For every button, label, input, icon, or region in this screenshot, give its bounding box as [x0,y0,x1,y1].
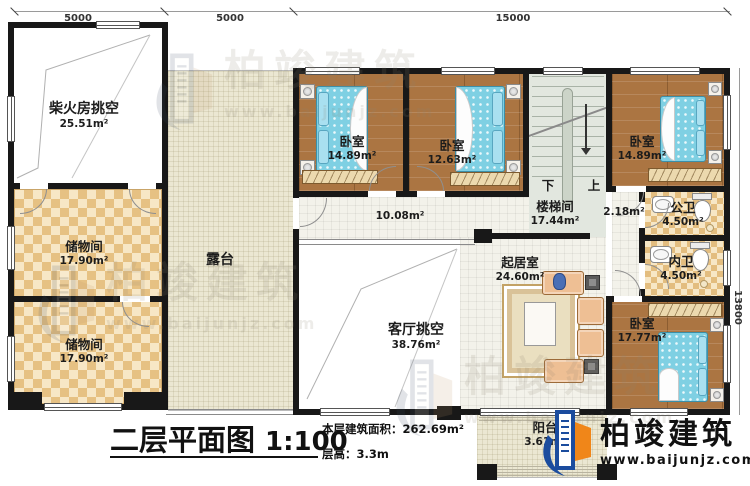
room-label-bedroom-4: 卧室 17.77m² [602,312,682,350]
brand-block: 柏竣建筑 www.baijunjz.com [536,406,750,480]
nightstand [710,388,724,402]
pillow [698,368,707,396]
window [7,226,15,270]
coffee-table [524,302,556,346]
wall [162,22,168,410]
pillow [492,92,503,126]
stair-down-label: 下 [538,175,558,194]
room-area: 4.50m² [660,270,701,284]
wall [645,235,730,241]
drawing-title: 二层平面图 1:100 [110,419,318,458]
door-gap [368,191,396,197]
room-label-bedroom-1: 卧室 14.89m² [312,130,392,168]
wall [523,68,529,197]
room-area: 24.60m² [496,271,545,285]
dimension-line-top [14,11,730,12]
window [723,325,731,383]
wall-post [474,229,492,243]
nightstand [708,150,722,164]
nightstand [710,318,724,332]
room-name: 起居室 [501,255,539,271]
brand-url: www.baijunjz.com [600,453,750,468]
room-name: 卧室 [339,134,364,150]
window [723,95,731,150]
nightstand [708,82,722,96]
wall [293,68,299,415]
room-area: 17.90m² [60,255,109,269]
wardrobe [302,170,378,184]
door-gap [293,198,299,229]
wall-pillar [124,392,168,410]
window [320,408,390,416]
dimension-label: 5000 [200,13,260,24]
balcony-post [477,464,497,480]
room-area: 17.44m² [531,215,580,229]
room-name: 柴火房挑空 [49,100,119,118]
pillow [696,130,705,156]
room-area: 14.89m² [618,150,667,164]
hallway-railing [299,239,475,245]
room-area: 17.77m² [618,332,667,346]
room-label-firewood-void: 柴火房挑空 25.51m² [28,97,140,135]
window [44,403,122,411]
nightstand [506,84,521,99]
stair-up-label: 上 [584,175,604,194]
room-name: 内卫 [668,254,693,270]
stair-rail [562,88,573,206]
room-label-bedroom-2: 卧室 12.63m² [412,134,492,172]
room-area: 17.90m² [60,353,109,367]
wardrobe [450,172,520,186]
pillow [492,130,503,164]
blanket [659,368,679,401]
dimension-label: 15000 [478,13,548,24]
door-gap [614,296,642,302]
window [441,67,495,75]
window [305,67,360,75]
window [7,96,15,142]
wall [492,233,590,239]
terrace-edge-railing [166,409,294,415]
room-name: 卧室 [629,316,654,332]
room-area: 14.89m² [328,150,377,164]
wall [299,191,529,197]
window [7,336,15,382]
room-name: 露台 [206,251,234,269]
wardrobe [648,168,722,182]
window [630,67,700,75]
room-name: 储物间 [65,337,103,353]
brand-text: 柏竣建筑 www.baijunjz.com [600,418,750,468]
brand-logo-icon [536,406,596,480]
terrace-floor [168,70,293,411]
room-area: 12.63m² [428,154,477,168]
floor-area-note: 本层建筑面积：262.69m² [322,421,492,437]
room-label-public-bath: 公卫 4.50m² [650,198,716,232]
window [723,250,731,286]
door-gap [417,191,445,197]
room-name: 储物间 [65,239,103,255]
room-label-storage-2: 储物间 17.90m² [50,334,118,370]
dimension-line-right [739,68,740,415]
dimension-label: 13800 [732,272,743,342]
toilet-tank [690,242,710,249]
corridor-area-label: 2.18m² [600,206,648,218]
armchair [577,297,604,325]
sofa [544,359,584,383]
room-label-family-room: 起居室 24.60m² [482,252,558,288]
nightstand [300,84,315,99]
brand-name: 柏竣建筑 [600,418,750,451]
room-name: 卧室 [629,134,654,150]
pillow [318,92,329,126]
room-area: 4.50m² [662,216,703,230]
armchair [577,329,604,357]
side-table [584,359,599,374]
pillow [696,100,705,126]
stair-direction-arrow [585,104,587,148]
room-label-bedroom-3: 卧室 14.89m² [604,130,680,168]
title-text: 二层平面图 [110,426,255,455]
side-table [585,275,600,290]
room-label-stairwell: 楼梯间 17.44m² [518,196,592,232]
room-label-ensuite-bath: 内卫 4.50m² [648,252,714,286]
dimension-label: 5000 [48,13,108,24]
wall-pillar [437,406,461,420]
floor-plan-canvas: 5000 5000 15000 13800 柴火房挑空 25.51m² 储物间 … [0,0,750,486]
window [543,67,583,75]
floor-height-note: 层高：3.3m [322,446,492,462]
stair-arrow-head [581,148,591,155]
room-label-living-void: 客厅挑空 38.76m² [372,318,460,356]
room-name: 楼梯间 [536,199,574,215]
room-name: 客厅挑空 [388,321,444,339]
pillow [698,336,707,364]
room-name: 卧室 [439,138,464,154]
room-label-terrace: 露台 [194,250,246,270]
wall-pillar [8,392,42,410]
room-label-storage-1: 储物间 17.90m² [50,236,118,272]
wall [403,68,409,197]
room-area: 25.51m² [60,118,109,132]
hallway-area-label: 10.08m² [366,210,434,222]
room-name: 公卫 [670,200,695,216]
room-area: 38.76m² [392,339,441,353]
